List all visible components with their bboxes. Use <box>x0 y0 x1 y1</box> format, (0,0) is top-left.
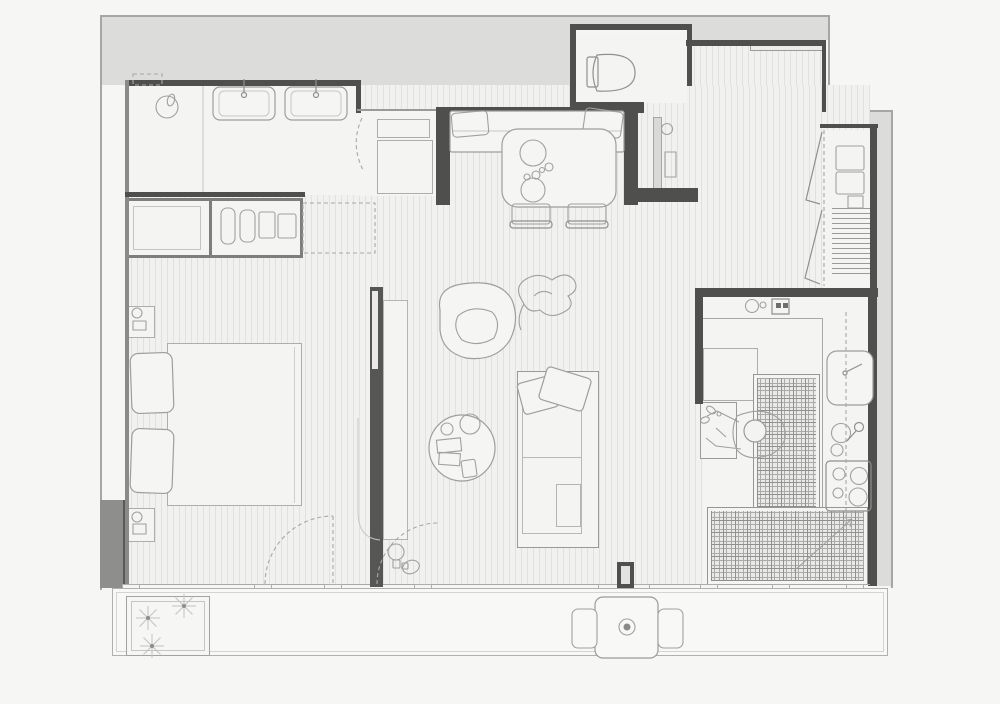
vestibule-cabinet-large <box>377 140 433 194</box>
kitchen-corner-cabinet <box>703 348 758 401</box>
balcony <box>112 588 888 656</box>
property-line-right <box>891 110 893 588</box>
vestibule-cabinet-small <box>377 119 430 138</box>
wall-kitchen-left <box>695 288 703 404</box>
property-line-top <box>100 15 830 17</box>
kitchen-tile-floor-lower <box>707 507 868 585</box>
partition-pocket <box>372 291 378 369</box>
wall-left <box>125 80 129 586</box>
planter-inner-line <box>131 601 205 651</box>
facade-wall-post-core <box>621 566 630 584</box>
room-wc <box>575 33 687 103</box>
wall-wc-top <box>570 24 691 30</box>
balcony-inner-line <box>116 592 884 652</box>
kitchen-counter-right-run <box>822 318 868 511</box>
kitchen-prep-island <box>700 402 737 459</box>
floor-plan-canvas <box>0 0 1000 704</box>
kitchen-tile-floor-upper <box>753 374 820 511</box>
closet-shelving <box>832 208 870 278</box>
sofa-blanket <box>556 484 581 527</box>
wall-nook-left <box>436 107 450 205</box>
bed-duvet <box>167 343 302 506</box>
pillar-left <box>100 500 125 588</box>
wall-kitchen-right <box>868 296 877 586</box>
planter-box <box>126 596 210 656</box>
wardrobe-divider <box>209 198 212 258</box>
wall-hall-top <box>686 40 826 46</box>
sofa-seat-divider <box>522 457 582 458</box>
exterior-zone-top-left <box>100 15 572 85</box>
wall-hall-right <box>822 46 826 112</box>
wall-wc-left <box>570 24 576 110</box>
wall-kitchen-top <box>695 288 878 297</box>
wall-wc-right <box>687 24 692 86</box>
tile-pattern <box>757 378 816 507</box>
partition-panel <box>383 300 408 540</box>
wall-bathroom-top <box>125 80 360 86</box>
nightstand-lower <box>128 508 155 542</box>
exterior-zone-top-right <box>688 15 830 40</box>
wall-hall-bottom <box>624 188 698 202</box>
room-bathroom <box>130 85 357 195</box>
wardrobe-inner-left <box>133 206 201 250</box>
nightstand-upper <box>128 306 155 338</box>
tile-pattern <box>711 511 864 581</box>
bed-edge-line <box>294 347 295 503</box>
hall-half-wall <box>653 117 662 189</box>
wall-vestibule-top <box>357 109 437 111</box>
wall-bathroom-bottom <box>125 192 305 197</box>
kitchen-counter-top-run <box>703 296 868 319</box>
wall-wc-bottom <box>570 102 644 113</box>
wall-closet-right <box>870 124 877 296</box>
